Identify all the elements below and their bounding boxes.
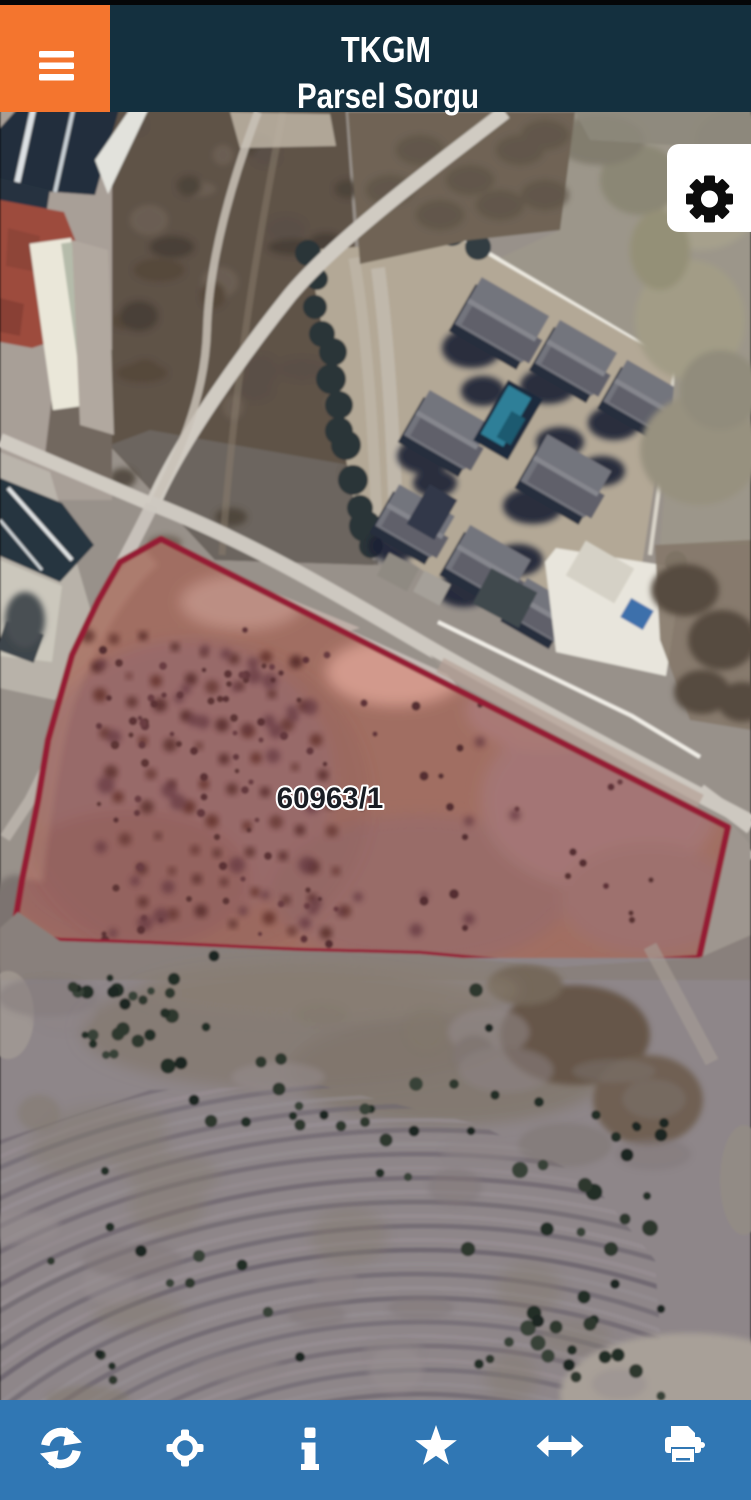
- svg-text:Parsel Sorgu: Parsel Sorgu: [297, 77, 479, 116]
- svg-text:TKGM: TKGM: [341, 29, 431, 70]
- svg-text:60963/1: 60963/1: [277, 782, 384, 815]
